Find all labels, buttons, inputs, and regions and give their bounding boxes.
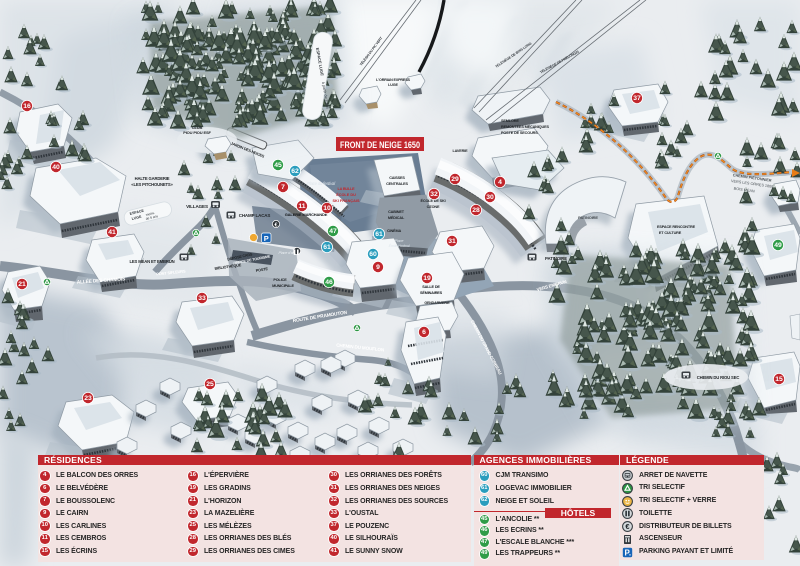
svg-text:€: €: [274, 223, 277, 229]
svg-text:45: 45: [274, 162, 282, 169]
svg-text:LUGE: LUGE: [388, 83, 398, 87]
svg-text:62: 62: [291, 168, 299, 175]
svg-text:OZONE: OZONE: [427, 205, 440, 209]
svg-text:POSTE DE SECOURS: POSTE DE SECOURS: [501, 131, 538, 135]
svg-text:REMONTÉES MÉCANIQUES: REMONTÉES MÉCANIQUES: [501, 124, 549, 129]
svg-text:16: 16: [23, 103, 31, 110]
svg-text:PIOU PIOU ESF: PIOU PIOU ESF: [183, 130, 211, 135]
svg-text:25: 25: [206, 381, 214, 388]
svg-text:Place du festival: Place du festival: [307, 181, 336, 186]
svg-text:31: 31: [448, 238, 456, 245]
svg-text:40: 40: [52, 164, 60, 171]
svg-text:PATINOIRE: PATINOIRE: [578, 215, 598, 220]
svg-text:LES MÉAN ET EMBRUN: LES MÉAN ET EMBRUN: [130, 259, 175, 264]
svg-text:FRONT DE NEIGE 1650: FRONT DE NEIGE 1650: [340, 140, 420, 150]
svg-text:47: 47: [329, 228, 337, 235]
svg-text:LA BULLE: LA BULLE: [337, 187, 355, 191]
svg-text:SEMLORE: SEMLORE: [501, 119, 519, 123]
svg-text:Place: Place: [395, 239, 404, 243]
svg-text:GALERIE MARCHANDE: GALERIE MARCHANDE: [285, 212, 328, 217]
svg-text:CINÉMA: CINÉMA: [387, 228, 401, 233]
svg-text:P: P: [264, 234, 269, 243]
svg-text:41: 41: [108, 229, 116, 236]
svg-text:7: 7: [281, 184, 285, 191]
svg-text:SKI FRANÇAIS: SKI FRANÇAIS: [332, 199, 359, 203]
svg-text:60: 60: [369, 251, 377, 258]
svg-text:LAVERIE: LAVERIE: [452, 149, 468, 153]
svg-text:GENDARMERIE: GENDARMERIE: [424, 301, 450, 305]
svg-text:21: 21: [18, 281, 26, 288]
svg-text:MUNICIPALE: MUNICIPALE: [272, 284, 294, 288]
svg-text:CAISSES: CAISSES: [389, 176, 405, 180]
svg-text:30: 30: [486, 194, 494, 201]
svg-text:«LES PITCHOUNETS»: «LES PITCHOUNETS»: [131, 182, 173, 187]
svg-text:19: 19: [423, 275, 431, 282]
svg-text:SALLE DE: SALLE DE: [422, 285, 440, 289]
svg-text:ESPACE RENCONTRE: ESPACE RENCONTRE: [657, 225, 696, 229]
svg-text:37: 37: [633, 95, 641, 102]
svg-text:ÉCOLE DU: ÉCOLE DU: [336, 192, 356, 197]
svg-text:L'ORRIAN EXPRESS: L'ORRIAN EXPRESS: [376, 78, 410, 82]
svg-text:Émile Hodoul: Émile Hodoul: [389, 243, 410, 248]
svg-text:15: 15: [775, 376, 783, 383]
svg-text:HALTE GARDERIE: HALTE GARDERIE: [135, 176, 170, 181]
svg-text:▌▌: ▌▌: [294, 248, 300, 255]
svg-text:33: 33: [198, 295, 206, 302]
svg-text:P.: P.: [624, 548, 631, 557]
svg-text:6: 6: [422, 329, 426, 336]
svg-text:CABINET: CABINET: [388, 210, 405, 214]
svg-text:PATINOIRE: PATINOIRE: [545, 256, 567, 261]
svg-text:61: 61: [323, 244, 331, 251]
svg-text:VILLAGES: VILLAGES: [186, 204, 208, 209]
svg-text:10: 10: [323, 205, 331, 212]
svg-text:29: 29: [451, 176, 459, 183]
svg-text:ET CULTURE: ET CULTURE: [659, 231, 682, 235]
svg-text:32: 32: [430, 191, 438, 198]
svg-text:9: 9: [376, 264, 380, 271]
svg-text:CHEMIN DU RIOU SEC: CHEMIN DU RIOU SEC: [697, 375, 740, 380]
svg-text:46: 46: [325, 279, 333, 286]
svg-text:61: 61: [375, 231, 383, 238]
svg-text:MÉDICAL: MÉDICAL: [388, 215, 405, 220]
svg-text:CENTRALES: CENTRALES: [386, 182, 408, 186]
svg-text:23: 23: [84, 395, 92, 402]
svg-text:11: 11: [298, 203, 305, 210]
svg-text:CHAMP LACAS: CHAMP LACAS: [239, 213, 271, 218]
svg-text:4: 4: [498, 179, 502, 186]
svg-text:POLICE: POLICE: [273, 278, 287, 282]
svg-text:SÉMINAIRES: SÉMINAIRES: [420, 290, 443, 295]
svg-text:49: 49: [774, 242, 782, 249]
svg-text:28: 28: [472, 207, 480, 214]
